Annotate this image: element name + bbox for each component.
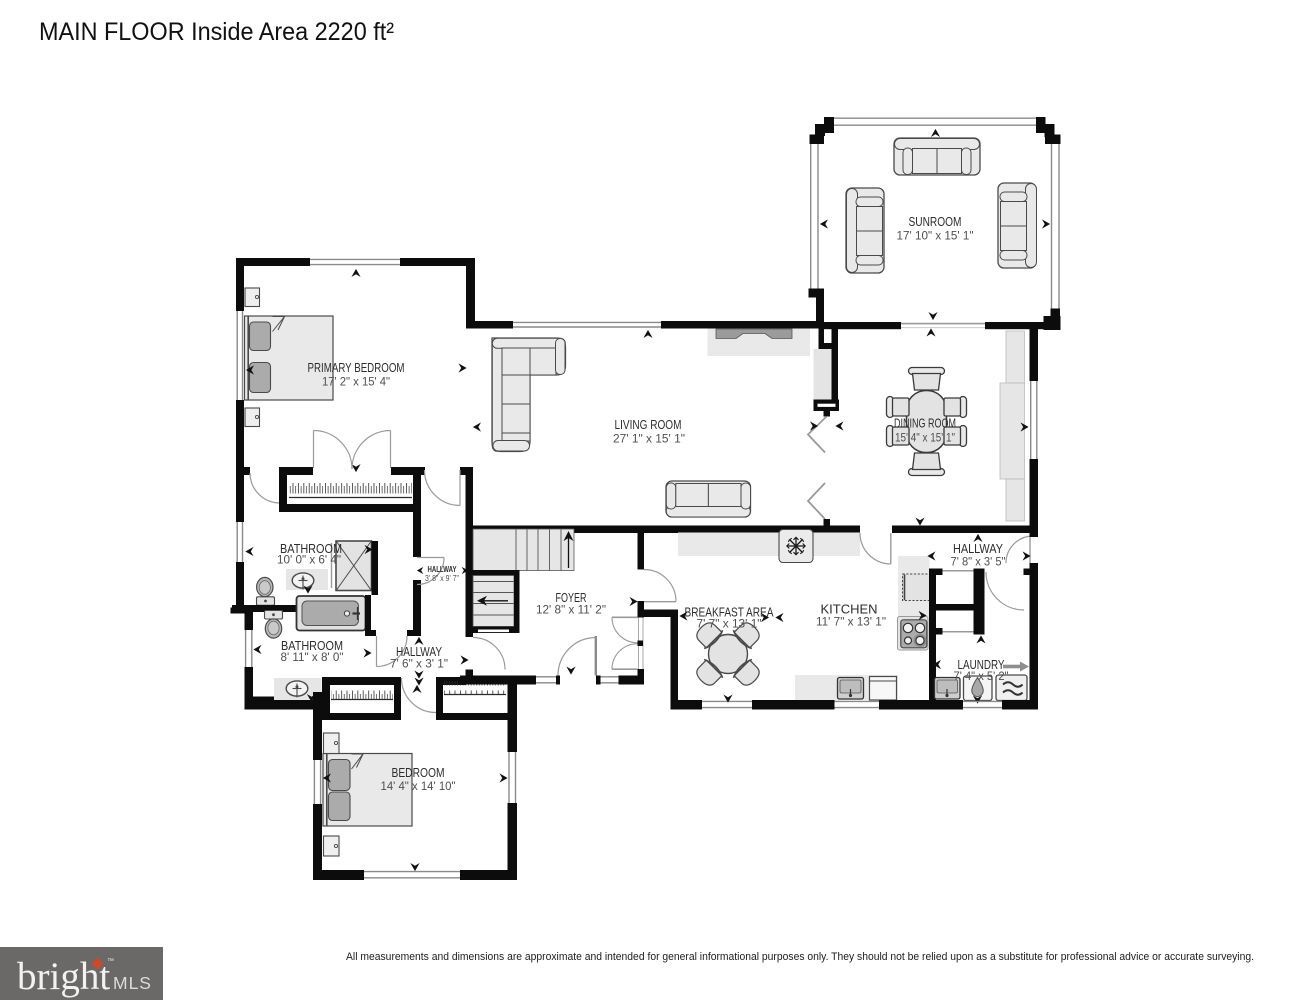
svg-text:7' 4" x 5' 2": 7' 4" x 5' 2"	[954, 669, 1009, 683]
svg-text:DINING ROOM: DINING ROOM	[894, 416, 956, 431]
svg-text:™: ™	[107, 958, 114, 965]
svg-text:LIVING ROOM: LIVING ROOM	[615, 417, 682, 432]
svg-text:All measurements and dimension: All measurements and dimensions are appr…	[346, 951, 1254, 963]
svg-text:3' 8" x 9' 7": 3' 8" x 9' 7"	[425, 574, 459, 583]
svg-text:BEDROOM: BEDROOM	[392, 765, 445, 780]
svg-text:11' 7" x 13' 1": 11' 7" x 13' 1"	[816, 615, 886, 629]
svg-text:14' 4" x 14' 10": 14' 4" x 14' 10"	[381, 779, 456, 793]
svg-text:SUNROOM: SUNROOM	[909, 214, 962, 229]
svg-text:15' 4" x 15' 1": 15' 4" x 15' 1"	[895, 431, 955, 445]
svg-text:17' 10" x 15' 1": 17' 10" x 15' 1"	[897, 229, 974, 243]
svg-text:12' 8" x 11' 2": 12' 8" x 11' 2"	[536, 603, 606, 617]
svg-text:MLS: MLS	[113, 973, 152, 993]
svg-text:8' 11" x 8' 0": 8' 11" x 8' 0"	[281, 650, 344, 664]
svg-text:HALLWAY: HALLWAY	[428, 565, 457, 574]
svg-text:7' 6" x 3' 1": 7' 6" x 3' 1"	[390, 657, 448, 671]
svg-text:17' 2" x 15' 4": 17' 2" x 15' 4"	[322, 375, 390, 389]
svg-text:PRIMARY BEDROOM: PRIMARY BEDROOM	[308, 360, 405, 375]
svg-text:10' 0" x 6' 4": 10' 0" x 6' 4"	[277, 553, 341, 567]
svg-text:27' 1" x 15' 1": 27' 1" x 15' 1"	[613, 432, 685, 446]
svg-text:7' 7" x 13' 1": 7' 7" x 13' 1"	[697, 617, 762, 631]
svg-text:MAIN FLOOR Inside Area 2220 ft: MAIN FLOOR Inside Area 2220 ft²	[39, 18, 394, 46]
svg-text:7' 8" x 3' 5": 7' 8" x 3' 5"	[951, 555, 1006, 569]
